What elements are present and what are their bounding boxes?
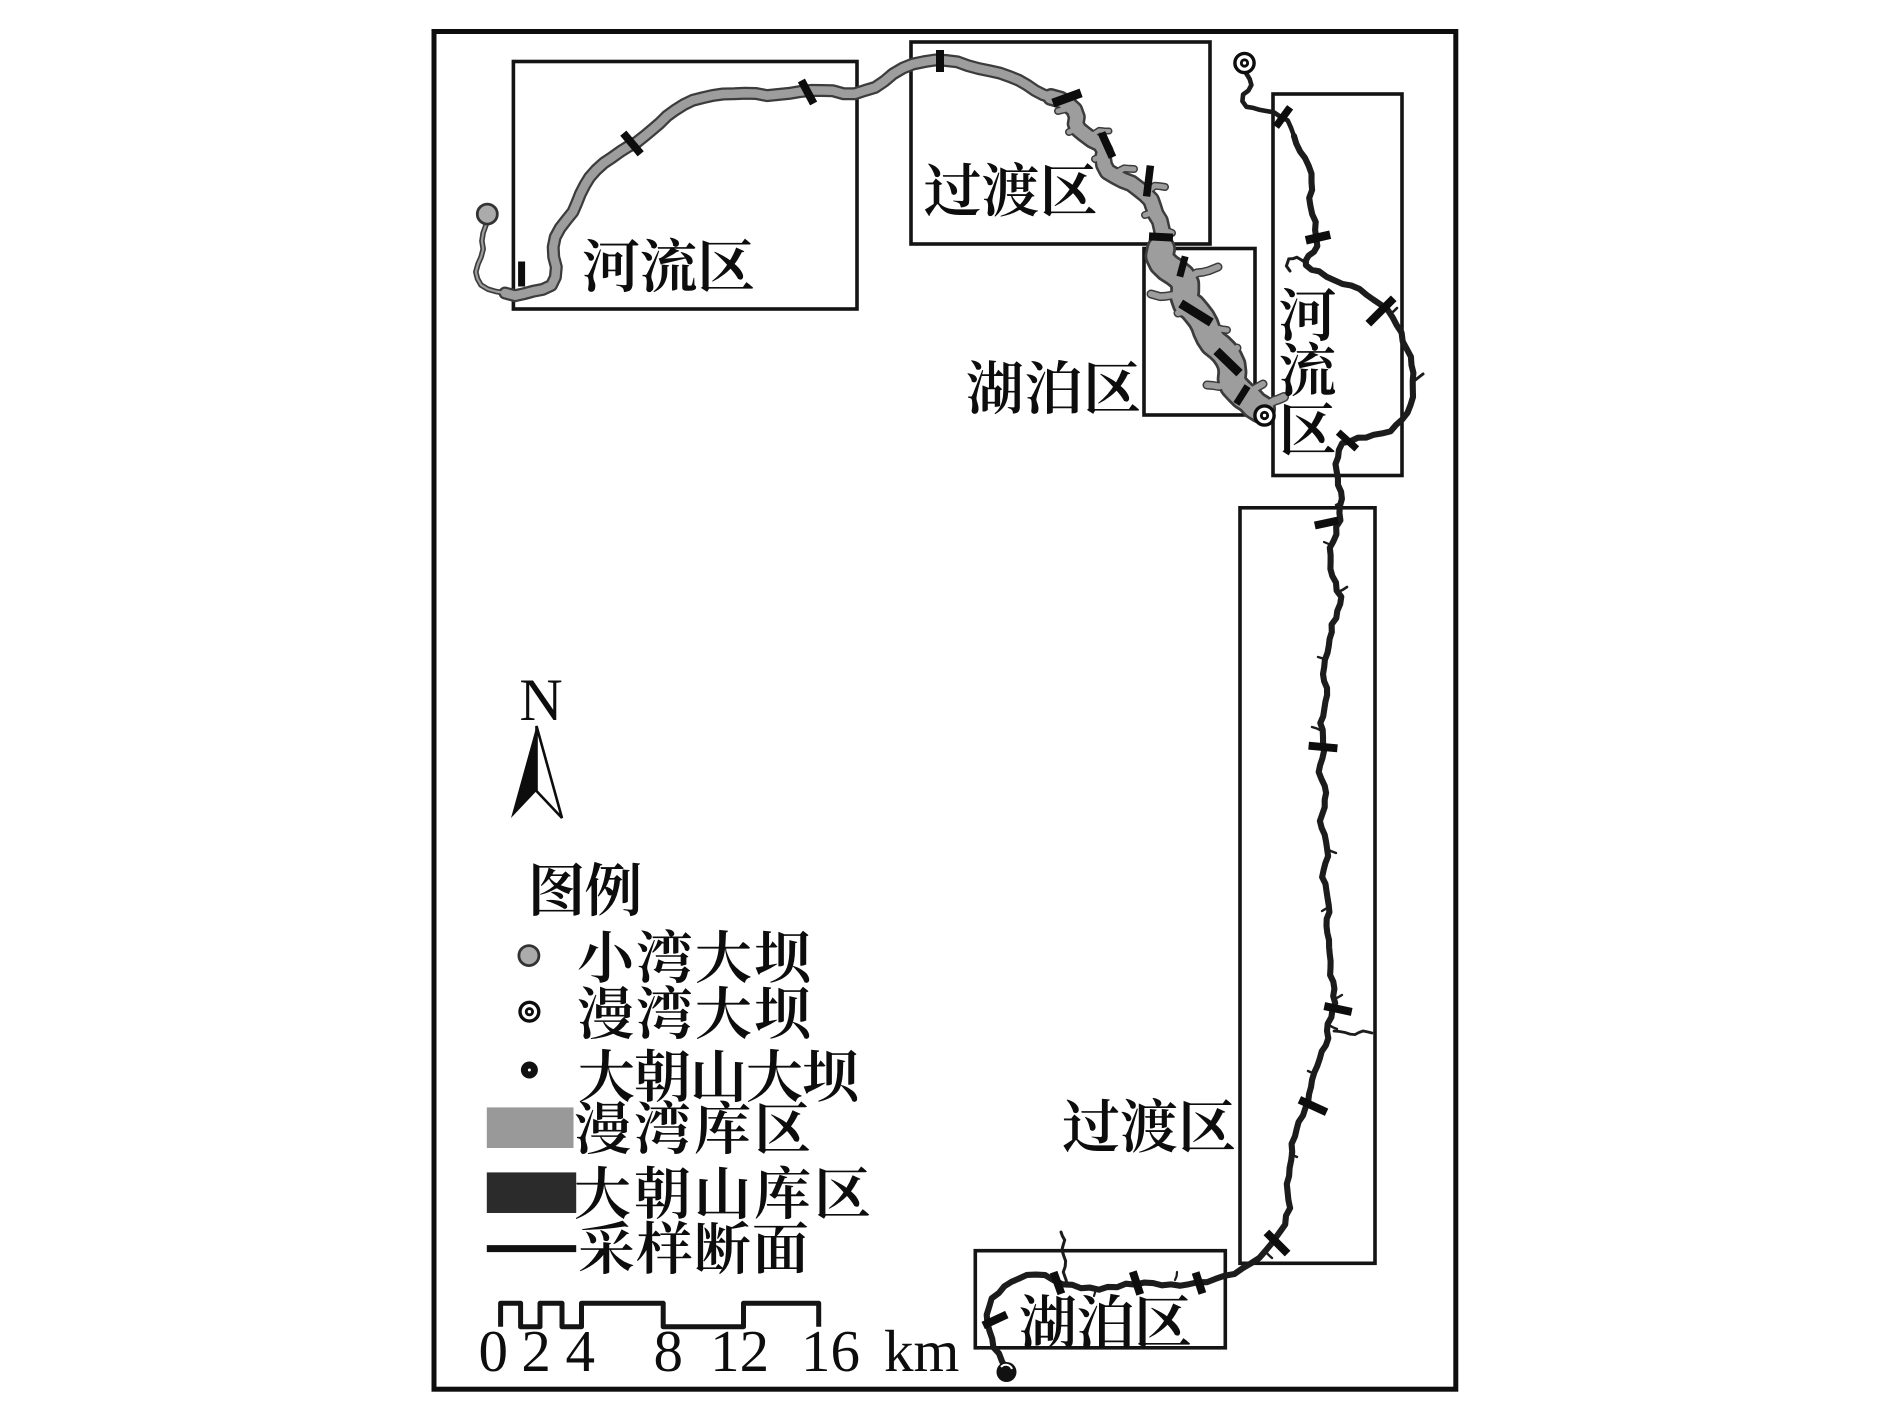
svg-text:12: 12 (710, 1318, 769, 1384)
svg-text:4: 4 (565, 1318, 595, 1384)
svg-text:2: 2 (521, 1318, 551, 1384)
svg-text:km: km (884, 1318, 959, 1384)
svg-text:8: 8 (654, 1318, 684, 1384)
svg-text:16: 16 (801, 1318, 860, 1384)
svg-text:N: N (519, 667, 562, 733)
svg-text:0: 0 (479, 1318, 509, 1384)
